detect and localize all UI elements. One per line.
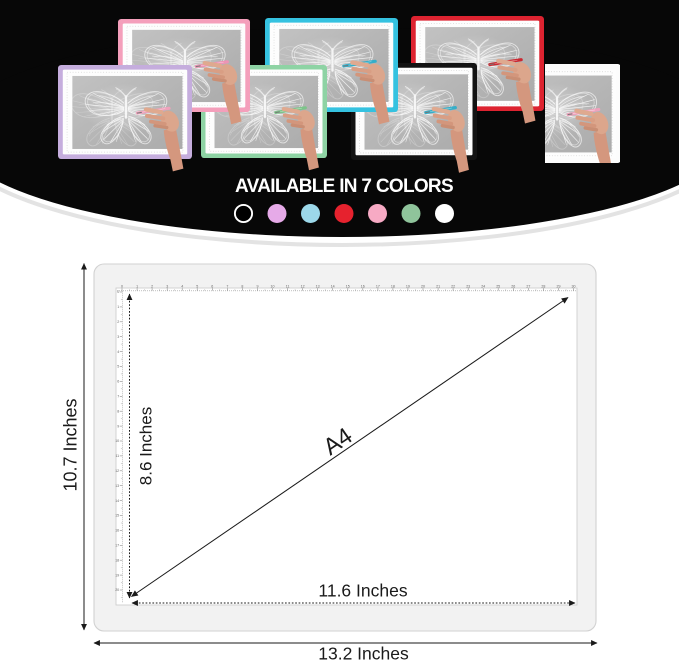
svg-text:0: 0 [117, 290, 119, 294]
svg-text:4: 4 [181, 285, 183, 289]
svg-text:0: 0 [121, 285, 123, 289]
svg-text:7: 7 [117, 395, 119, 399]
svg-text:13: 13 [316, 285, 320, 289]
svg-text:22: 22 [451, 285, 455, 289]
svg-text:10: 10 [115, 439, 119, 443]
svg-text:3: 3 [166, 285, 168, 289]
svg-text:9: 9 [117, 424, 119, 428]
svg-text:7: 7 [226, 285, 228, 289]
svg-text:29: 29 [557, 285, 561, 289]
svg-text:18: 18 [391, 285, 395, 289]
svg-text:11.6 Inches: 11.6 Inches [318, 581, 407, 601]
svg-text:23: 23 [466, 285, 470, 289]
svg-text:13.2 Inches: 13.2 Inches [318, 644, 409, 664]
svg-text:21: 21 [436, 285, 440, 289]
svg-text:28: 28 [541, 285, 545, 289]
svg-text:10: 10 [271, 285, 275, 289]
svg-text:30: 30 [572, 285, 576, 289]
svg-text:4: 4 [117, 350, 119, 354]
svg-text:12: 12 [301, 285, 305, 289]
svg-text:27: 27 [526, 285, 530, 289]
svg-text:17: 17 [376, 285, 380, 289]
svg-text:15: 15 [346, 285, 350, 289]
svg-text:6: 6 [117, 380, 119, 384]
svg-text:19: 19 [115, 573, 119, 577]
svg-text:25: 25 [496, 285, 500, 289]
svg-text:10.7 Inches: 10.7 Inches [60, 398, 80, 491]
svg-text:2: 2 [151, 285, 153, 289]
svg-text:18: 18 [115, 558, 119, 562]
svg-text:1: 1 [136, 285, 138, 289]
svg-text:6: 6 [211, 285, 213, 289]
svg-text:8.6 Inches: 8.6 Inches [137, 407, 156, 485]
svg-text:12: 12 [115, 469, 119, 473]
svg-text:14: 14 [331, 285, 335, 289]
svg-text:2: 2 [117, 320, 119, 324]
svg-text:1: 1 [117, 305, 119, 309]
svg-text:14: 14 [115, 499, 119, 503]
svg-text:5: 5 [117, 365, 119, 369]
svg-text:17: 17 [115, 544, 119, 548]
svg-text:9: 9 [257, 285, 259, 289]
svg-text:8: 8 [241, 285, 243, 289]
svg-text:16: 16 [361, 285, 365, 289]
svg-text:13: 13 [115, 484, 119, 488]
svg-text:8: 8 [117, 409, 119, 413]
svg-text:15: 15 [115, 514, 119, 518]
svg-text:26: 26 [511, 285, 515, 289]
svg-text:19: 19 [406, 285, 410, 289]
svg-text:20: 20 [421, 285, 425, 289]
svg-text:11: 11 [286, 285, 290, 289]
svg-text:3: 3 [117, 335, 119, 339]
svg-text:5: 5 [196, 285, 198, 289]
svg-text:16: 16 [115, 529, 119, 533]
svg-text:24: 24 [481, 285, 485, 289]
svg-text:11: 11 [115, 454, 119, 458]
svg-text:20: 20 [115, 588, 119, 592]
